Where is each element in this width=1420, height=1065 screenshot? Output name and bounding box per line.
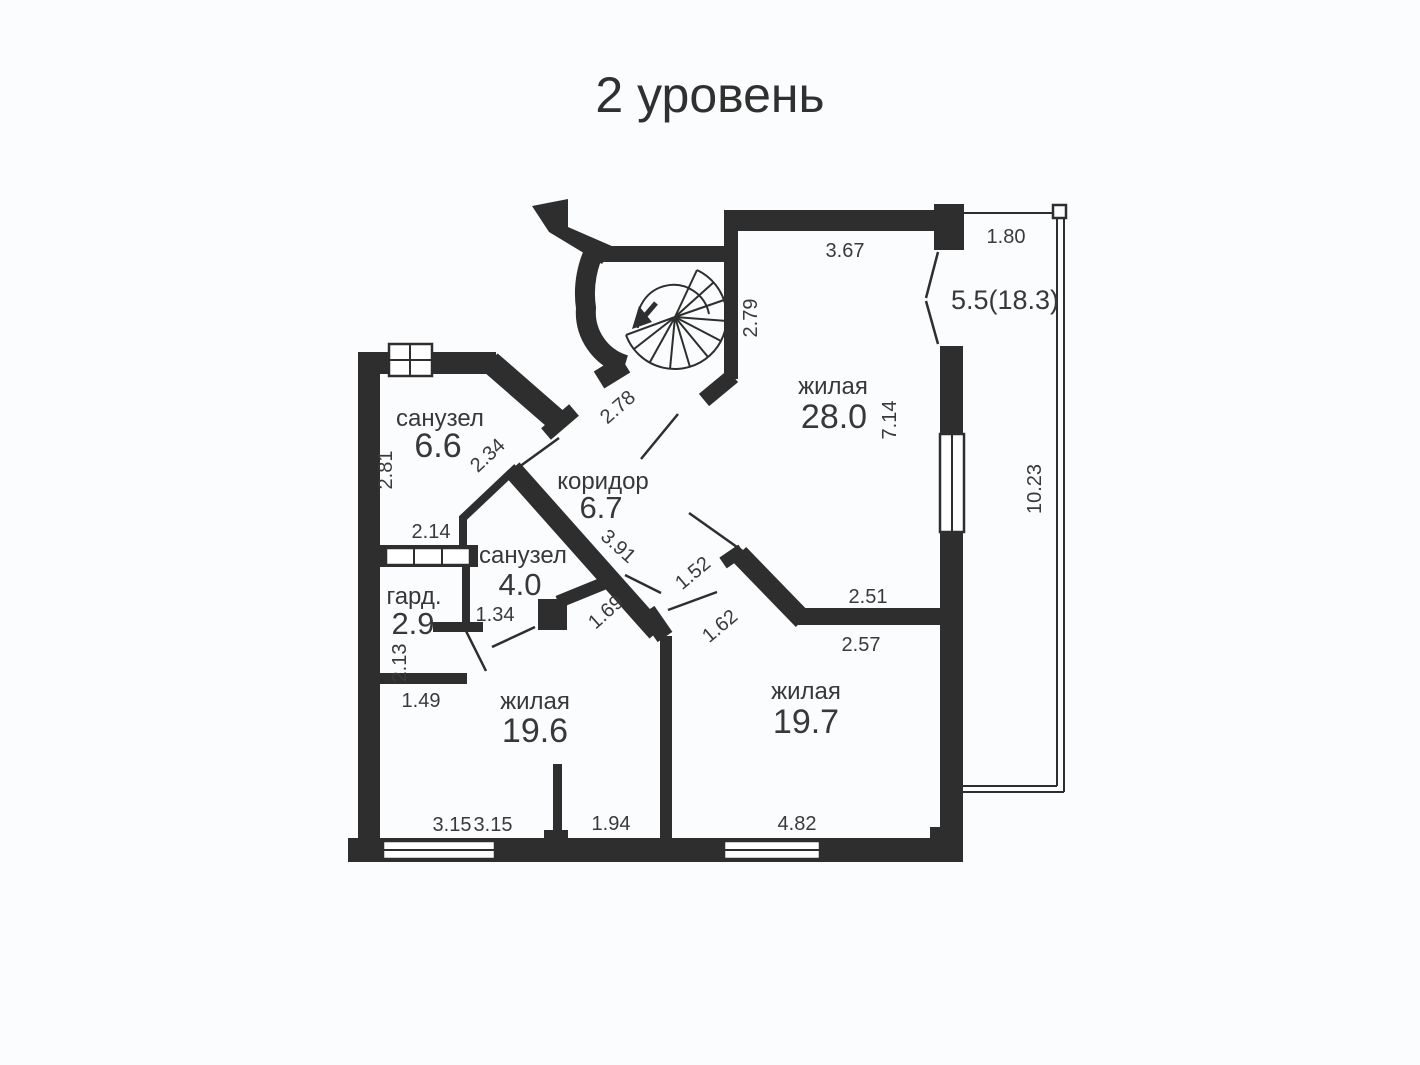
dim-1-94: 1.94 — [592, 813, 631, 835]
room-wardrobe-area: 2.9 — [391, 606, 434, 641]
window-bath66-icon — [389, 344, 432, 376]
dim-2-78: 2.78 — [596, 386, 640, 428]
door-bath40 — [492, 627, 535, 647]
room-living196-name: жилая — [500, 688, 570, 715]
balcony-area-label: 5.5(18.3) — [951, 285, 1059, 315]
dim-1-49: 1.49 — [402, 690, 441, 712]
dim-2-81: 2.81 — [375, 451, 397, 490]
door-wardrobe — [466, 631, 486, 671]
dim-2-51: 2.51 — [849, 586, 888, 608]
dim-2-14: 2.14 — [412, 521, 451, 543]
room-living197-name: жилая — [771, 678, 841, 705]
door-balcony-upper — [926, 252, 938, 298]
door-balcony-lower — [926, 301, 938, 344]
room-bath40-area: 4.0 — [498, 567, 541, 602]
spiral-staircase-icon — [626, 270, 727, 369]
door-bath66 — [519, 438, 559, 467]
door-living197 — [689, 513, 744, 552]
room-living196-area: 19.6 — [502, 712, 568, 750]
plan-title: 2 уровень — [595, 67, 824, 123]
window-living28-icon — [940, 434, 964, 532]
door-living196-b — [668, 592, 717, 610]
room-corridor-area: 6.7 — [579, 490, 622, 525]
dim-2-34: 2.34 — [466, 434, 509, 477]
dim-1-80: 1.80 — [987, 226, 1026, 248]
dim-2-13: 2.13 — [389, 644, 411, 683]
door-corridor-stair — [641, 414, 678, 459]
dim-1-52: 1.52 — [671, 552, 715, 594]
window-living197-icon — [724, 841, 820, 859]
balcony-corner-marker — [1053, 205, 1066, 218]
dim-10-23: 10.23 — [1024, 464, 1046, 514]
dim-2-79: 2.79 — [740, 299, 762, 338]
room-bath40-name: санузел — [479, 542, 567, 569]
dim-3-15-a: 3.15 — [433, 814, 472, 836]
dim-7-14: 7.14 — [879, 401, 901, 440]
floor-plan: 2 уровень — [0, 0, 1420, 1065]
window-interior-icon — [386, 548, 470, 565]
room-living28-area: 28.0 — [801, 398, 867, 436]
window-living196-icon — [383, 841, 495, 859]
dim-4-82: 4.82 — [778, 813, 817, 835]
dim-2-57: 2.57 — [842, 634, 881, 656]
dim-1-62: 1.62 — [698, 605, 742, 647]
room-living197-area: 19.7 — [773, 703, 839, 741]
dim-3-67: 3.67 — [826, 240, 865, 262]
dim-3-15-b: 3.15 — [474, 814, 513, 836]
room-bath66-area: 6.6 — [414, 427, 461, 465]
dim-1-34: 1.34 — [476, 604, 515, 626]
room-living28-name: жилая — [798, 373, 868, 400]
